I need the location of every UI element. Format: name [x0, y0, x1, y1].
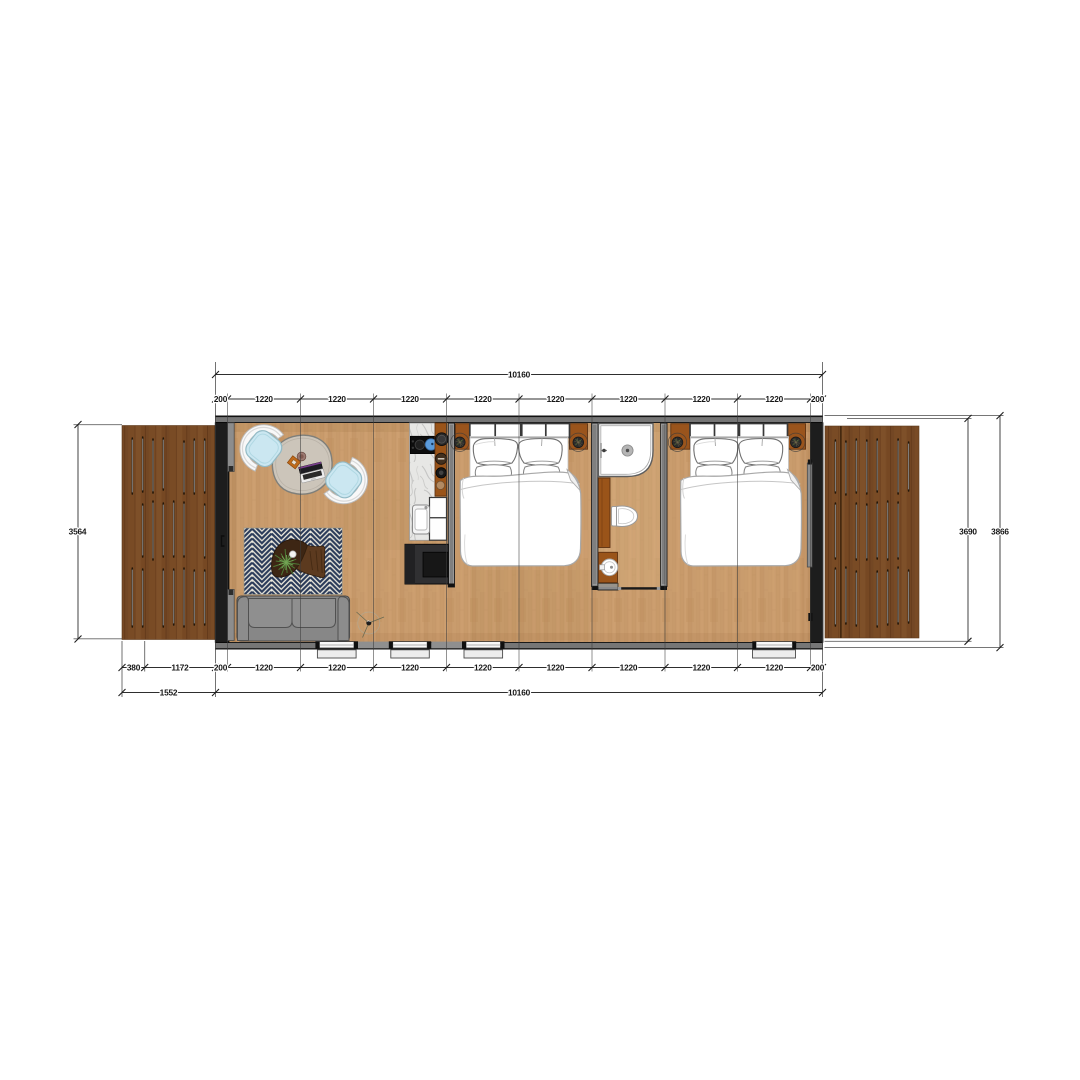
svg-text:1220: 1220 [692, 662, 710, 672]
svg-text:3690: 3690 [959, 526, 977, 536]
svg-text:1220: 1220 [692, 394, 710, 404]
svg-text:1220: 1220 [547, 662, 565, 672]
svg-text:1220: 1220 [620, 394, 638, 404]
svg-text:1172: 1172 [171, 662, 189, 672]
svg-text:1220: 1220 [401, 662, 419, 672]
svg-text:1552: 1552 [160, 687, 178, 697]
svg-text:1220: 1220 [765, 662, 783, 672]
svg-text:1220: 1220 [328, 662, 346, 672]
svg-text:1220: 1220 [328, 394, 346, 404]
svg-text:1220: 1220 [620, 662, 638, 672]
svg-text:200: 200 [811, 662, 825, 672]
svg-text:1220: 1220 [474, 394, 492, 404]
svg-text:200: 200 [811, 394, 825, 404]
svg-text:1220: 1220 [765, 394, 783, 404]
svg-text:10160: 10160 [508, 369, 531, 379]
svg-text:200: 200 [214, 662, 228, 672]
svg-text:3866: 3866 [991, 526, 1009, 536]
svg-text:10160: 10160 [508, 687, 531, 697]
svg-text:3564: 3564 [69, 526, 87, 536]
svg-text:1220: 1220 [547, 394, 565, 404]
svg-text:1220: 1220 [401, 394, 419, 404]
svg-text:200: 200 [214, 394, 228, 404]
svg-text:1220: 1220 [255, 394, 273, 404]
svg-text:1220: 1220 [474, 662, 492, 672]
svg-text:380: 380 [127, 662, 141, 672]
svg-text:1220: 1220 [255, 662, 273, 672]
